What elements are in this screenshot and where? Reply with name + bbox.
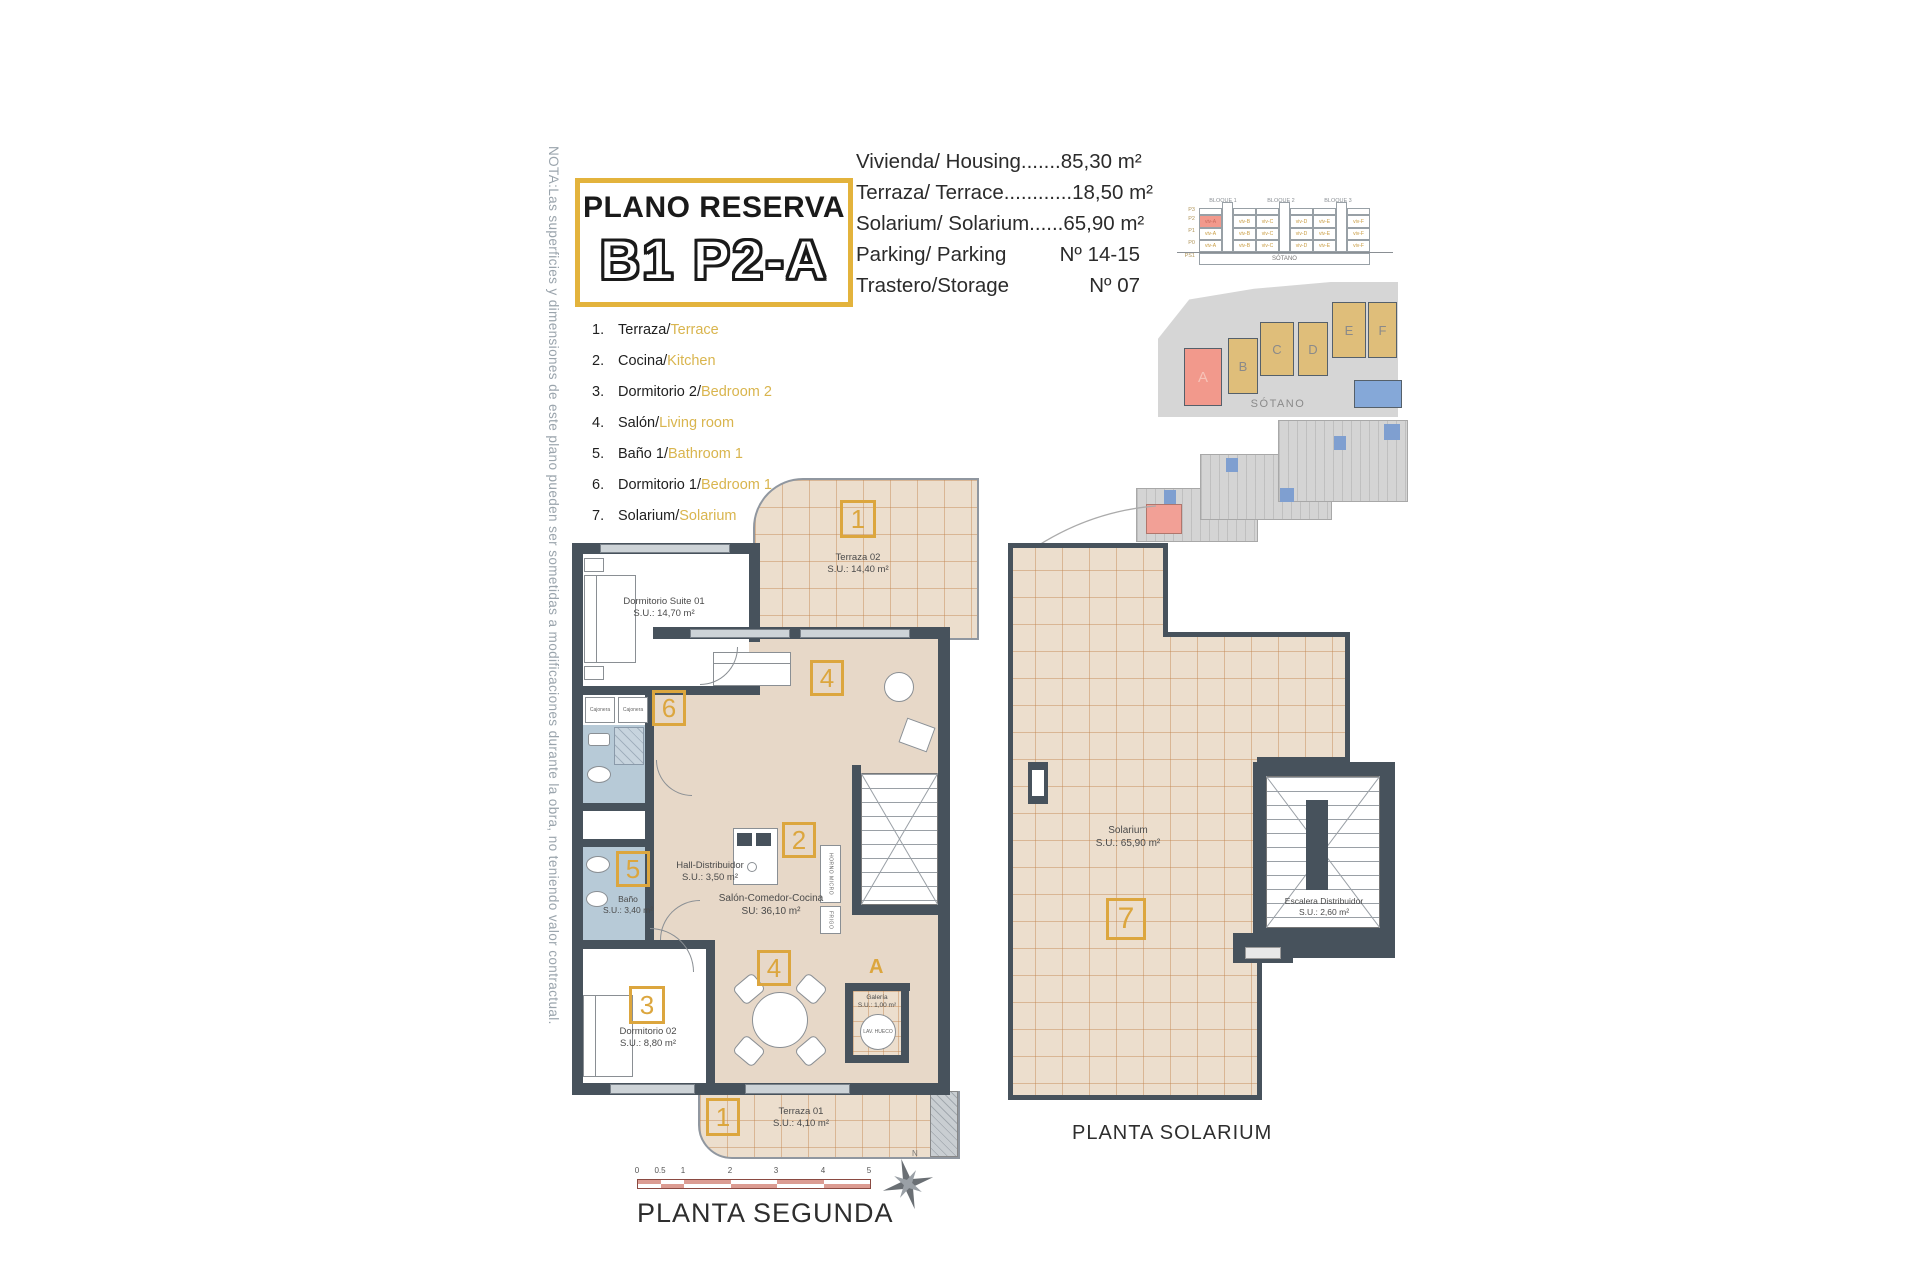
scale-tick: 2: [728, 1166, 732, 1175]
unit-cell: viv-C: [1256, 228, 1279, 240]
unit-cell: viv-B: [1233, 215, 1256, 228]
scale-bar: 0 0.5 1 2 3 4 5: [637, 1166, 869, 1196]
bed-pillow-line: [596, 575, 597, 663]
hob: [737, 833, 752, 846]
unit-cell: viv-C: [1256, 240, 1279, 252]
badge-terrace02: 1: [840, 500, 876, 538]
room-label-solarium: SolariumS.U.: 65,90 m²: [1088, 824, 1168, 850]
unit-cell: viv-B: [1233, 240, 1256, 252]
wall: [845, 1055, 909, 1063]
stair-core: [1164, 490, 1176, 504]
disclaimer-note: NOTA:Las superficies y dimensiones de es…: [546, 146, 561, 1061]
tower-vent: [1245, 947, 1281, 959]
room-label-stairs: Escalera DistribuidorS.U.: 2,60 m²: [1278, 896, 1370, 918]
wall: [852, 765, 861, 915]
floorplan-sheet: NOTA:Las superficies y dimensiones de es…: [0, 0, 1920, 1280]
stair-core: [1334, 436, 1346, 450]
toilet: [587, 766, 611, 783]
oven-label: HORNO MICRO: [828, 853, 834, 895]
unit-cell: viv-E: [1313, 228, 1336, 240]
summary-row: Terraza/ Terrace............18,50 m²: [856, 181, 1140, 212]
unit-cell: viv-C: [1256, 215, 1279, 228]
basement-bar: SÓTANO: [1199, 253, 1370, 265]
scale-bar-body: [637, 1179, 871, 1189]
sink: [588, 733, 610, 746]
wall: [901, 983, 909, 1063]
stair-core: [1280, 488, 1294, 502]
unit-cell: viv-D: [1290, 215, 1313, 228]
summary-row: Trastero/StorageNº 07: [856, 274, 1140, 305]
unit-cell: viv-E: [1313, 215, 1336, 228]
scale-tick: 4: [821, 1166, 825, 1175]
scale-tick: 1: [681, 1166, 685, 1175]
unit-cell: viv-F: [1347, 240, 1370, 252]
legend-item: 1.Terraza / Terrace: [592, 322, 772, 353]
floor-label: P2: [1183, 216, 1195, 222]
unit-cell: viv-B: [1233, 228, 1256, 240]
closet: Cajonera: [585, 697, 615, 723]
badge-living-b: 4: [757, 950, 791, 986]
stair-tower: [1222, 202, 1233, 252]
legend-item: 4.Salón / Living room: [592, 415, 772, 446]
staircase-diagonals: [861, 773, 938, 905]
attic-cell: [1290, 208, 1313, 215]
nightstand: [584, 558, 604, 572]
badge-kitchen: 2: [782, 822, 816, 858]
unit-cell: viv-A: [1199, 240, 1222, 252]
room-label-bedroom2: Dormitorio 02S.U.: 8,80 m²: [606, 1026, 690, 1051]
dining-table: [752, 992, 808, 1048]
shower: [614, 727, 644, 765]
stair-core-wall: [1306, 800, 1328, 890]
wall: [706, 943, 715, 1091]
site-block-c: C: [1260, 322, 1294, 376]
badge-terrace01: 1: [706, 1098, 740, 1136]
unit-cell-highlight: viv-A: [1199, 215, 1222, 228]
unit-cell: viv-D: [1290, 228, 1313, 240]
basement-title: SÓTANO: [1208, 398, 1348, 410]
floor-label: P0: [1183, 240, 1195, 246]
legend-item: 3.Dormitorio 2 / Bedroom 2: [592, 384, 772, 415]
unit-code: B1 P2-A: [580, 227, 848, 292]
room-label-terrace01: Terraza 01S.U.: 4,10 m²: [756, 1106, 846, 1131]
bed-pillow-line: [595, 995, 596, 1077]
scale-tick: 5: [867, 1166, 871, 1175]
window: [610, 1084, 695, 1094]
badge-bedroom1: 6: [652, 690, 686, 726]
summary-block: Vivienda/ Housing.......85,30 m² Terraza…: [856, 150, 1140, 305]
attic-cell: [1233, 208, 1256, 215]
unit-cell: viv-F: [1347, 228, 1370, 240]
site-block-f: F: [1368, 302, 1397, 358]
wall: [938, 627, 950, 1095]
room-legend: 1.Terraza / Terrace 2.Cocina / Kitchen 3…: [592, 322, 772, 539]
wall: [852, 905, 947, 915]
summary-row: Solarium/ Solarium......65,90 m²: [856, 212, 1140, 243]
chimney-inner: [1032, 770, 1044, 796]
attic-cell: [1199, 208, 1222, 215]
attic-cell: [1313, 208, 1336, 215]
north-compass: N: [878, 1146, 938, 1212]
summary-row: Parking/ ParkingNº 14-15: [856, 243, 1140, 274]
stair-tower: [1279, 202, 1290, 252]
hob: [756, 833, 771, 846]
room-label-hall: Hall-DistribuidorS.U.: 3,50 m²: [662, 860, 758, 885]
legend-item: 6.Dormitorio 1 /Bedroom 1: [592, 477, 772, 508]
title-box: PLANO RESERVA B1 P2-A: [575, 178, 853, 307]
scale-tick: 0: [635, 1166, 639, 1175]
stair-tower: [1336, 202, 1347, 252]
wall: [572, 940, 715, 949]
legend-item: 2.Cocina / Kitchen: [592, 353, 772, 384]
attic-cell: [1256, 208, 1279, 215]
entry-marker-a: A: [869, 956, 883, 979]
room-label-suite: Dormitorio Suite 01S.U.: 14,70 m²: [616, 596, 712, 621]
room-label-terrace02: Terraza 02S.U.: 14,40 m²: [816, 552, 900, 577]
basement-plan: SÓTANO: [1128, 396, 1420, 551]
toilet: [586, 856, 610, 873]
site-block-d: D: [1298, 322, 1328, 376]
scale-tick: 3: [774, 1166, 778, 1175]
room-label-bath: BañoS.U.: 3,40 m²: [598, 894, 658, 916]
window: [600, 544, 730, 553]
badge-bedroom2: 3: [629, 986, 665, 1024]
plan-subtitle: PLANO RESERVA: [580, 191, 848, 225]
attic-cell: [1347, 208, 1370, 215]
floor-label: P3: [1183, 207, 1195, 213]
stair-core: [1226, 458, 1238, 472]
legend-item: 7.Solarium/Solarium: [592, 508, 772, 539]
scale-tick: 0.5: [654, 1166, 665, 1175]
closet: Cajonera: [618, 697, 648, 723]
window: [800, 629, 910, 638]
north-label: N: [912, 1149, 918, 1158]
room-label-galeria: GaleríaS.U.: 1,00 m²: [852, 994, 902, 1011]
washer-space: LAV. HUECO: [860, 1014, 896, 1050]
side-table: [884, 672, 914, 702]
badge-bathroom: 5: [616, 851, 650, 887]
window: [690, 629, 790, 638]
unit-cell: viv-F: [1347, 215, 1370, 228]
unit-cell: viv-A: [1199, 228, 1222, 240]
wall: [572, 543, 583, 1095]
summary-row: Vivienda/ Housing.......85,30 m²: [856, 150, 1140, 181]
room-label-living: Salón-Comedor-CocinaSU: 36,10 m²: [706, 892, 836, 918]
site-block-e: E: [1332, 302, 1366, 358]
legend-item: 5.Baño 1 / Bathroom 1: [592, 446, 772, 477]
solarium-plan-title: PLANTA SOLARIUM: [1072, 1122, 1272, 1145]
stair-core: [1384, 424, 1400, 440]
floor-label: P1: [1183, 228, 1195, 234]
plan2-title: PLANTA SEGUNDA: [637, 1198, 894, 1229]
nightstand: [584, 666, 604, 680]
window: [745, 1084, 850, 1094]
badge-solarium: 7: [1106, 898, 1146, 940]
floor-label: PS1: [1183, 253, 1195, 259]
badge-living-a: 4: [810, 660, 844, 696]
site-block-b: B: [1228, 338, 1258, 394]
wall: [572, 839, 654, 847]
wall: [572, 803, 654, 811]
unit-cell: viv-E: [1313, 240, 1336, 252]
unit-cell: viv-D: [1290, 240, 1313, 252]
